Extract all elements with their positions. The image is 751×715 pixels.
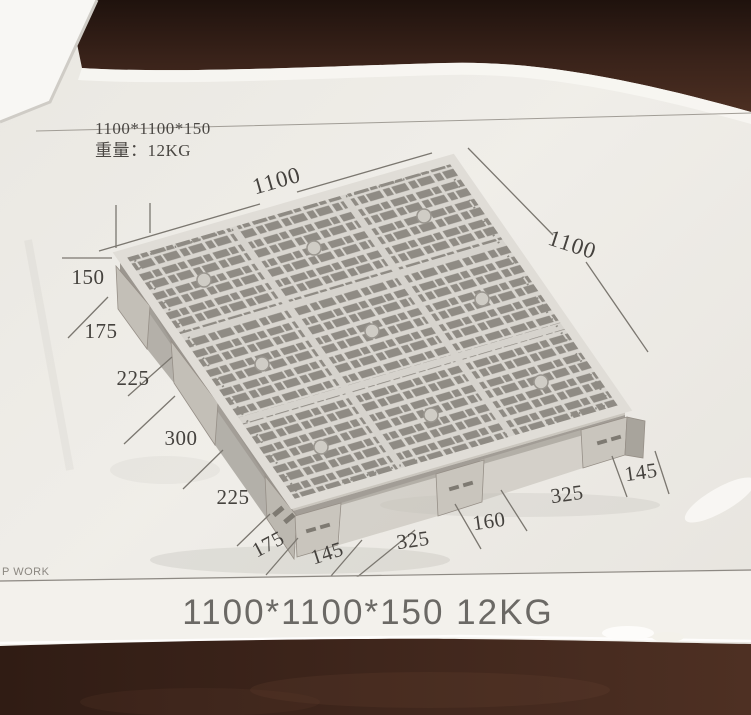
dim-bottom-160: 160 xyxy=(471,507,507,535)
spec-line-1: 1100*1100*150 xyxy=(95,119,211,138)
spec-line-2: 重量：12KG xyxy=(95,141,191,160)
dim-left-225-upper: 225 xyxy=(117,366,150,390)
dim-height-150: 150 xyxy=(72,265,105,289)
photo-of-pallet-spec-sheet: 1100 1100 150 175 225 300 225 175 145 32… xyxy=(0,0,751,715)
dim-foot-right-145: 145 xyxy=(623,458,659,486)
dim-left-175-upper: 175 xyxy=(85,319,118,343)
paper-wrinkle-bottom-1 xyxy=(602,626,654,640)
wood-grain-streak-2 xyxy=(80,688,320,715)
dim-bottom-325-right: 325 xyxy=(549,480,585,508)
paper-crease-blob xyxy=(110,456,220,484)
paper-wrinkle-bottom-2 xyxy=(652,632,684,642)
watermark-text: P WORK xyxy=(2,566,50,578)
dim-bottom-325-left: 325 xyxy=(395,526,431,554)
dim-left-225-lower: 225 xyxy=(217,485,250,509)
photo-caption: 1100*1100*150 12KG xyxy=(182,593,553,632)
foot-east-corner-side-face xyxy=(625,417,645,458)
dim-left-300: 300 xyxy=(165,426,198,450)
